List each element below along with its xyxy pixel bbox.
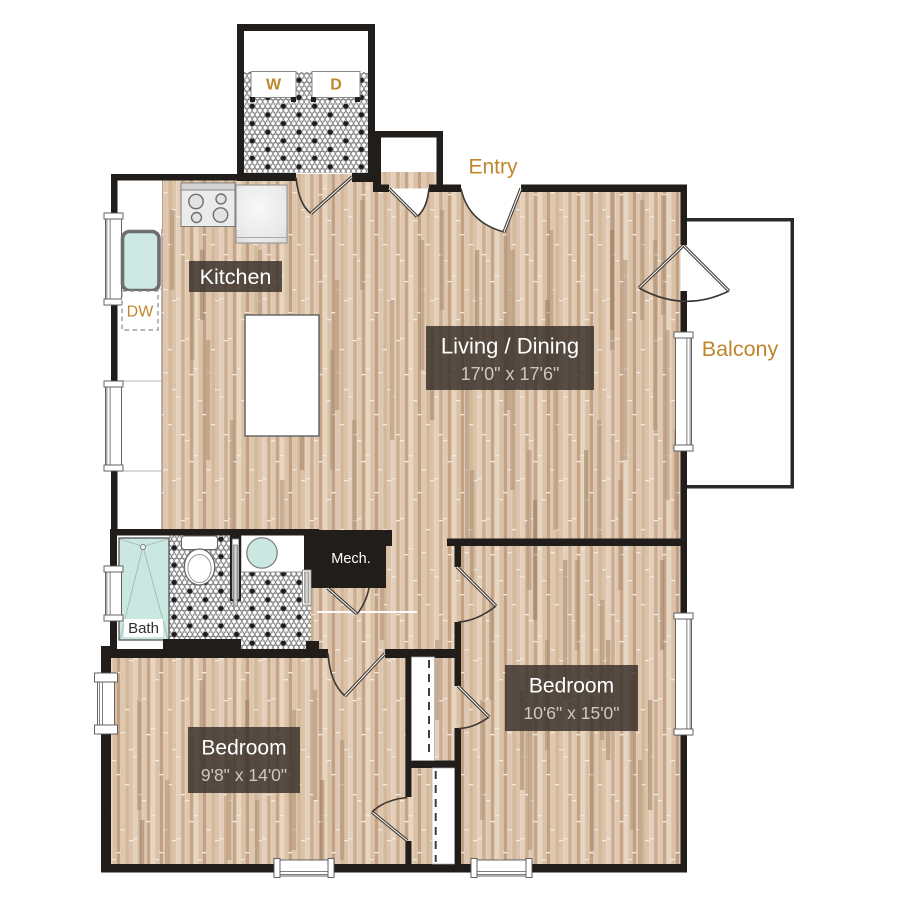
svg-text:Entry: Entry <box>468 156 518 179</box>
svg-text:Living / Dining: Living / Dining <box>441 334 579 359</box>
svg-text:Bedroom: Bedroom <box>529 675 614 698</box>
svg-text:D: D <box>330 77 342 94</box>
svg-text:Bath: Bath <box>128 620 159 637</box>
svg-text:Balcony: Balcony <box>702 337 779 361</box>
svg-text:DW: DW <box>127 304 155 321</box>
svg-text:Kitchen: Kitchen <box>200 265 272 289</box>
svg-text:Mech.: Mech. <box>331 551 371 567</box>
svg-text:17'0" x 17'6": 17'0" x 17'6" <box>461 364 560 384</box>
svg-text:9'8" x 14'0": 9'8" x 14'0" <box>201 765 287 785</box>
svg-text:10'6" x 15'0": 10'6" x 15'0" <box>524 703 620 723</box>
svg-text:Bedroom: Bedroom <box>201 737 286 760</box>
svg-text:W: W <box>266 77 282 94</box>
